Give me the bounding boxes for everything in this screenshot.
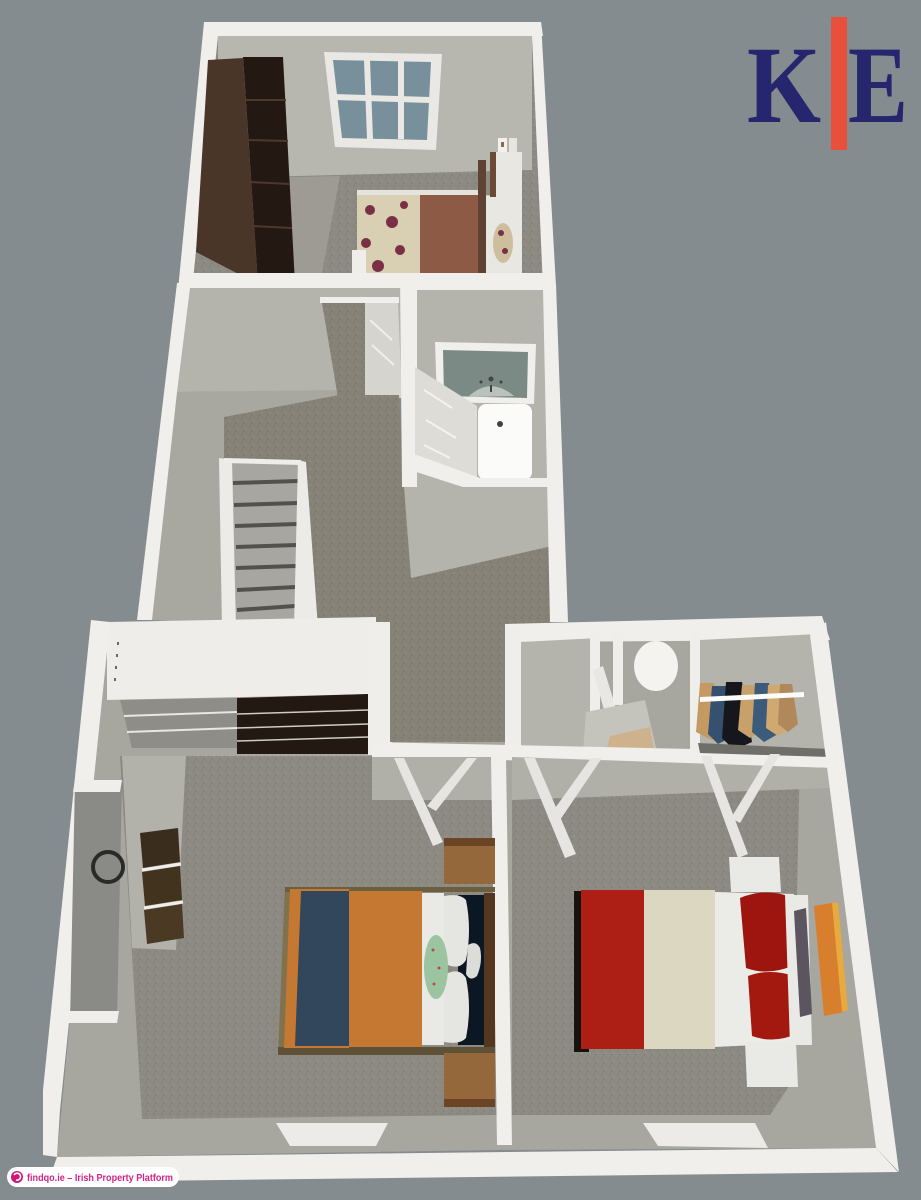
svg-text:E: E xyxy=(848,24,908,146)
svg-text:findqo.ie – Irish Property Pla: findqo.ie – Irish Property Platform xyxy=(27,1172,173,1184)
svg-text:K: K xyxy=(747,24,821,146)
